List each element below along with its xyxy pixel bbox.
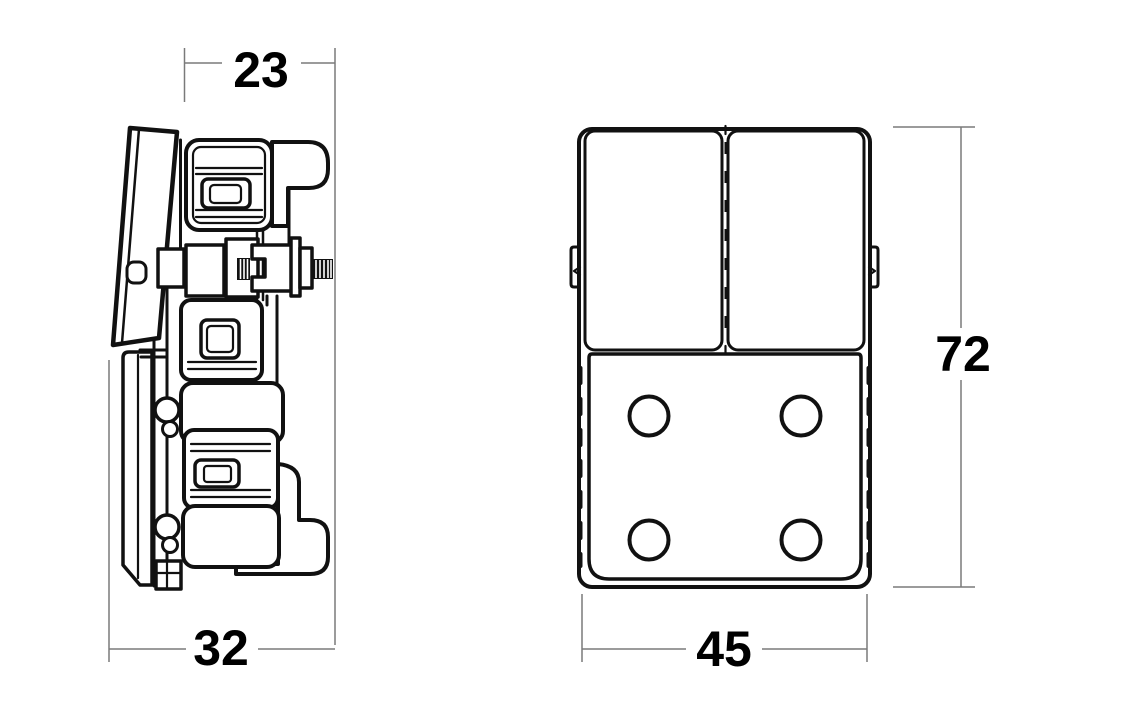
side-view [113,128,333,589]
front-view [571,126,878,587]
body-right-edges [267,296,277,383]
dimension-label-front-height: 72 [935,329,991,379]
drawing-canvas: 23 32 45 72 [0,0,1141,720]
screw-nut [300,248,312,288]
screw-arm-2 [186,245,224,296]
socket-hole [782,397,821,436]
socket-chamber-lower [183,506,279,567]
socket-hole [630,397,669,436]
socket-hole [782,521,821,560]
clip-bump [155,515,179,539]
rocker-panel-right [728,131,864,350]
top-bracket [272,142,328,226]
dimension-label-side-top-depth: 23 [233,45,289,95]
clip-bump-small [163,422,178,437]
screw-threaded-stud [312,259,333,279]
screw-arm [158,249,184,287]
bottom-foot [156,561,181,589]
dimension-label-front-width: 45 [696,624,752,674]
rocker-panel-left [585,131,722,350]
clip-bump [155,398,179,422]
dimension-label-side-overall-depth: 32 [193,623,249,673]
retaining-tab [127,262,146,283]
socket-hole [630,521,669,560]
clip-bump-small [163,538,178,553]
